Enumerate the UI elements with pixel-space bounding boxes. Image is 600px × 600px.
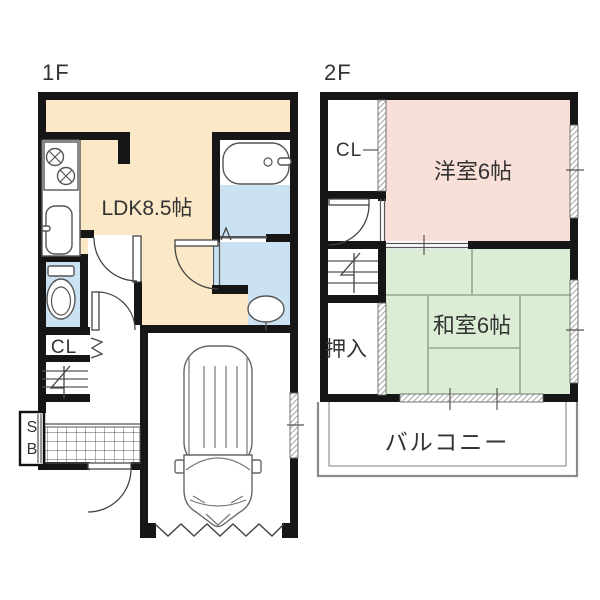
japanese-room-window [570,280,578,383]
kitchen-unit [42,140,80,256]
ldk-door-wall [134,281,142,325]
shoebox-label-s: S [27,419,38,436]
bathtub-faucet [278,158,291,165]
ldk-label: LDK8.5帖 [101,197,192,220]
washroom-sink [248,296,284,322]
f2-wall-right-top [570,92,578,125]
western-room-label: 洋室6帖 [434,159,512,184]
shoebox-label-b: B [27,441,38,458]
kitchen-wall-top [38,132,130,140]
hallway-floor [88,235,140,427]
car-mirror-left [175,460,184,473]
ldk-door-leaf [133,236,141,282]
toilet-wall-right [80,254,88,335]
f1-wall-right-lower [290,458,298,538]
floor-plan-canvas: 1F LDK8.5帖 CL S B [0,0,600,600]
floor-plan-page: 1F LDK8.5帖 CL S B [0,0,600,600]
f2-stair-arrow [341,253,360,293]
garage [155,346,284,536]
japanese-room-label: 和室6帖 [433,313,511,338]
toilet-wall-bottom [38,327,90,335]
f2-closet-label: CL [336,140,362,161]
f2-stairs [328,253,378,293]
f2-stairs-wall-bottom [320,295,386,303]
f2-hall-door-leaf [329,199,369,205]
car-mirror-right [252,460,261,473]
f2-wall-bottom-right [543,394,578,402]
bath-sill-stub [266,234,290,242]
kitchen-wall-stub [118,132,130,164]
entrance-door-arc [88,469,131,512]
car-cabin [184,346,252,468]
balcony-sliding-door [400,394,543,402]
f2-closet-wall-bottom [320,191,386,199]
f1-closet-label: CL [51,337,77,358]
floor2-label: 2F [324,60,352,85]
toilet-door-leaf [92,292,99,330]
f1-wall-top [38,92,298,100]
f1-wall-garage-top [140,325,298,333]
car-top-view [175,346,261,527]
ldk-floor-notch [212,294,248,325]
hall-wall-stub [80,230,94,238]
room-partition-opening [386,244,468,248]
entrance-tile-grid [45,427,140,463]
toilet-fixtures [47,266,75,319]
bath-wall-left [212,132,220,242]
f1-stair-steps [42,371,88,387]
f2-stair-steps [328,261,378,283]
f2-doors [329,199,369,245]
bath-wall-top [214,132,298,140]
ldk-floor-lower [140,235,212,325]
oshiire-sliding-door [378,303,386,395]
garage-wall-left [140,325,148,538]
washroom-door-leaf [175,240,218,246]
floor-2-plan: 2F CL 洋室6帖 和室6帖 押入 バルコニー [318,60,584,476]
floor-1-plan: 1F LDK8.5帖 CL S B [20,60,304,538]
entrance-door-leaf [88,463,131,469]
f2-hall-doorway [381,199,385,241]
garage-corner-left [140,523,156,538]
f2-closet-sliding-door [378,100,386,191]
floor1-label: 1F [42,60,70,85]
bath-sill [220,236,267,239]
f2-divider-mid [378,241,386,303]
toilet-tank [48,266,74,276]
room-partition-solid [468,241,572,249]
f2-wall-top [320,92,578,100]
oshiire-label: 押入 [325,338,367,361]
western-room-window [570,125,578,218]
f2-hall-door-arc [329,205,369,245]
balcony-label: バルコニー [385,429,510,455]
f2-wall-bottom-left [320,394,402,402]
kitchen-faucet [42,226,50,231]
car-front-body [184,455,252,527]
